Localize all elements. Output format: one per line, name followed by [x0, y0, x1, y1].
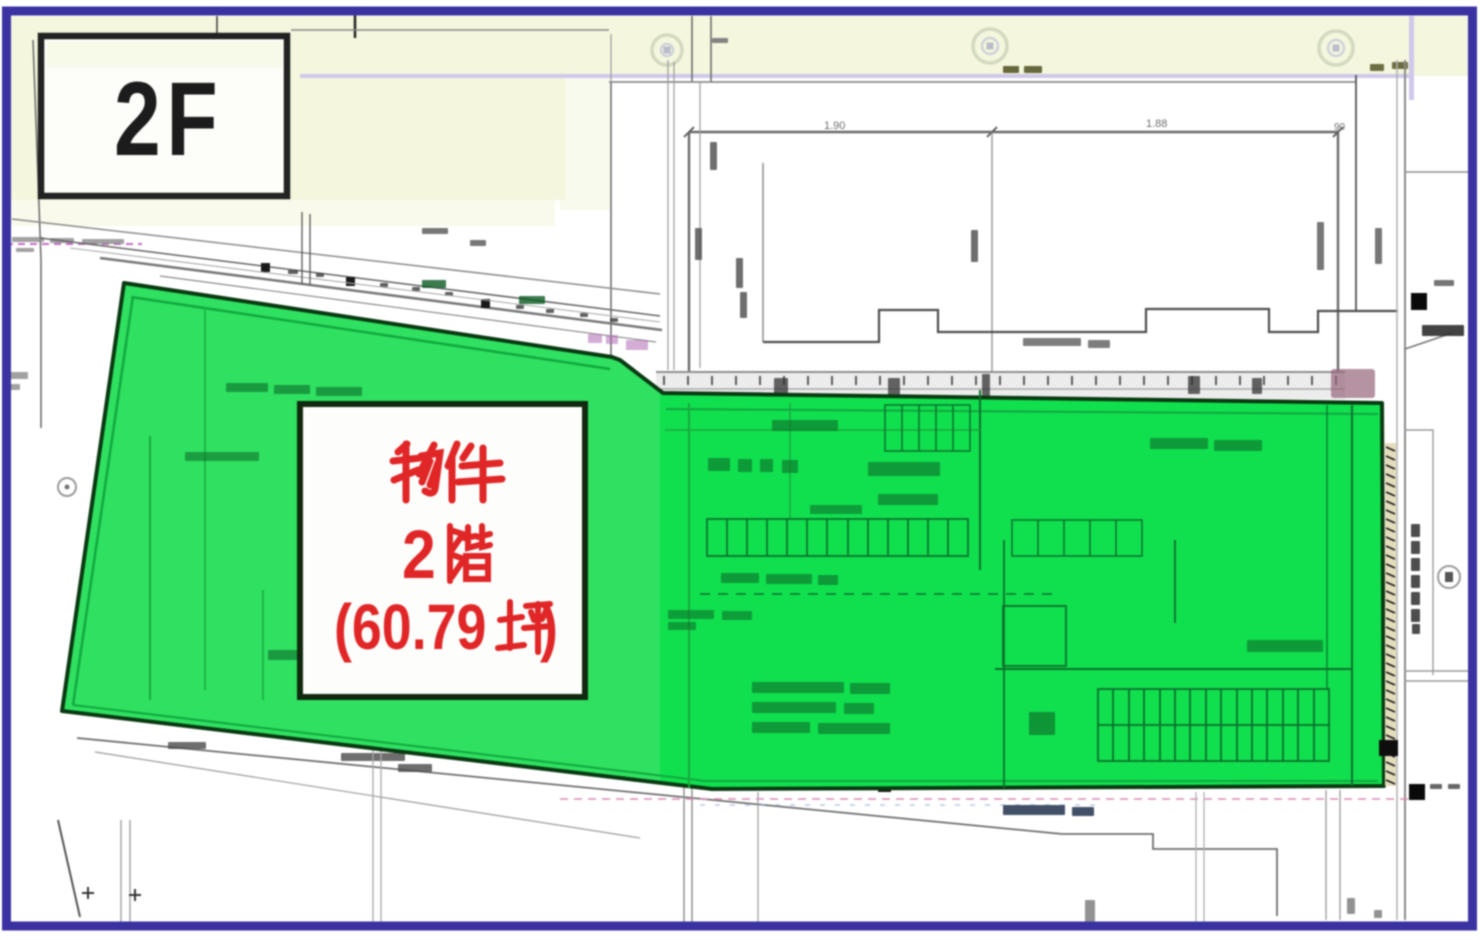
svg-text:): ) [540, 591, 558, 664]
svg-text:1.90: 1.90 [824, 120, 845, 132]
svg-text:1.88: 1.88 [1146, 118, 1167, 130]
svg-text:2: 2 [402, 515, 436, 593]
svg-text:90: 90 [1334, 122, 1346, 133]
svg-text:(60.79: (60.79 [334, 591, 486, 664]
svg-text:2F: 2F [114, 61, 223, 178]
